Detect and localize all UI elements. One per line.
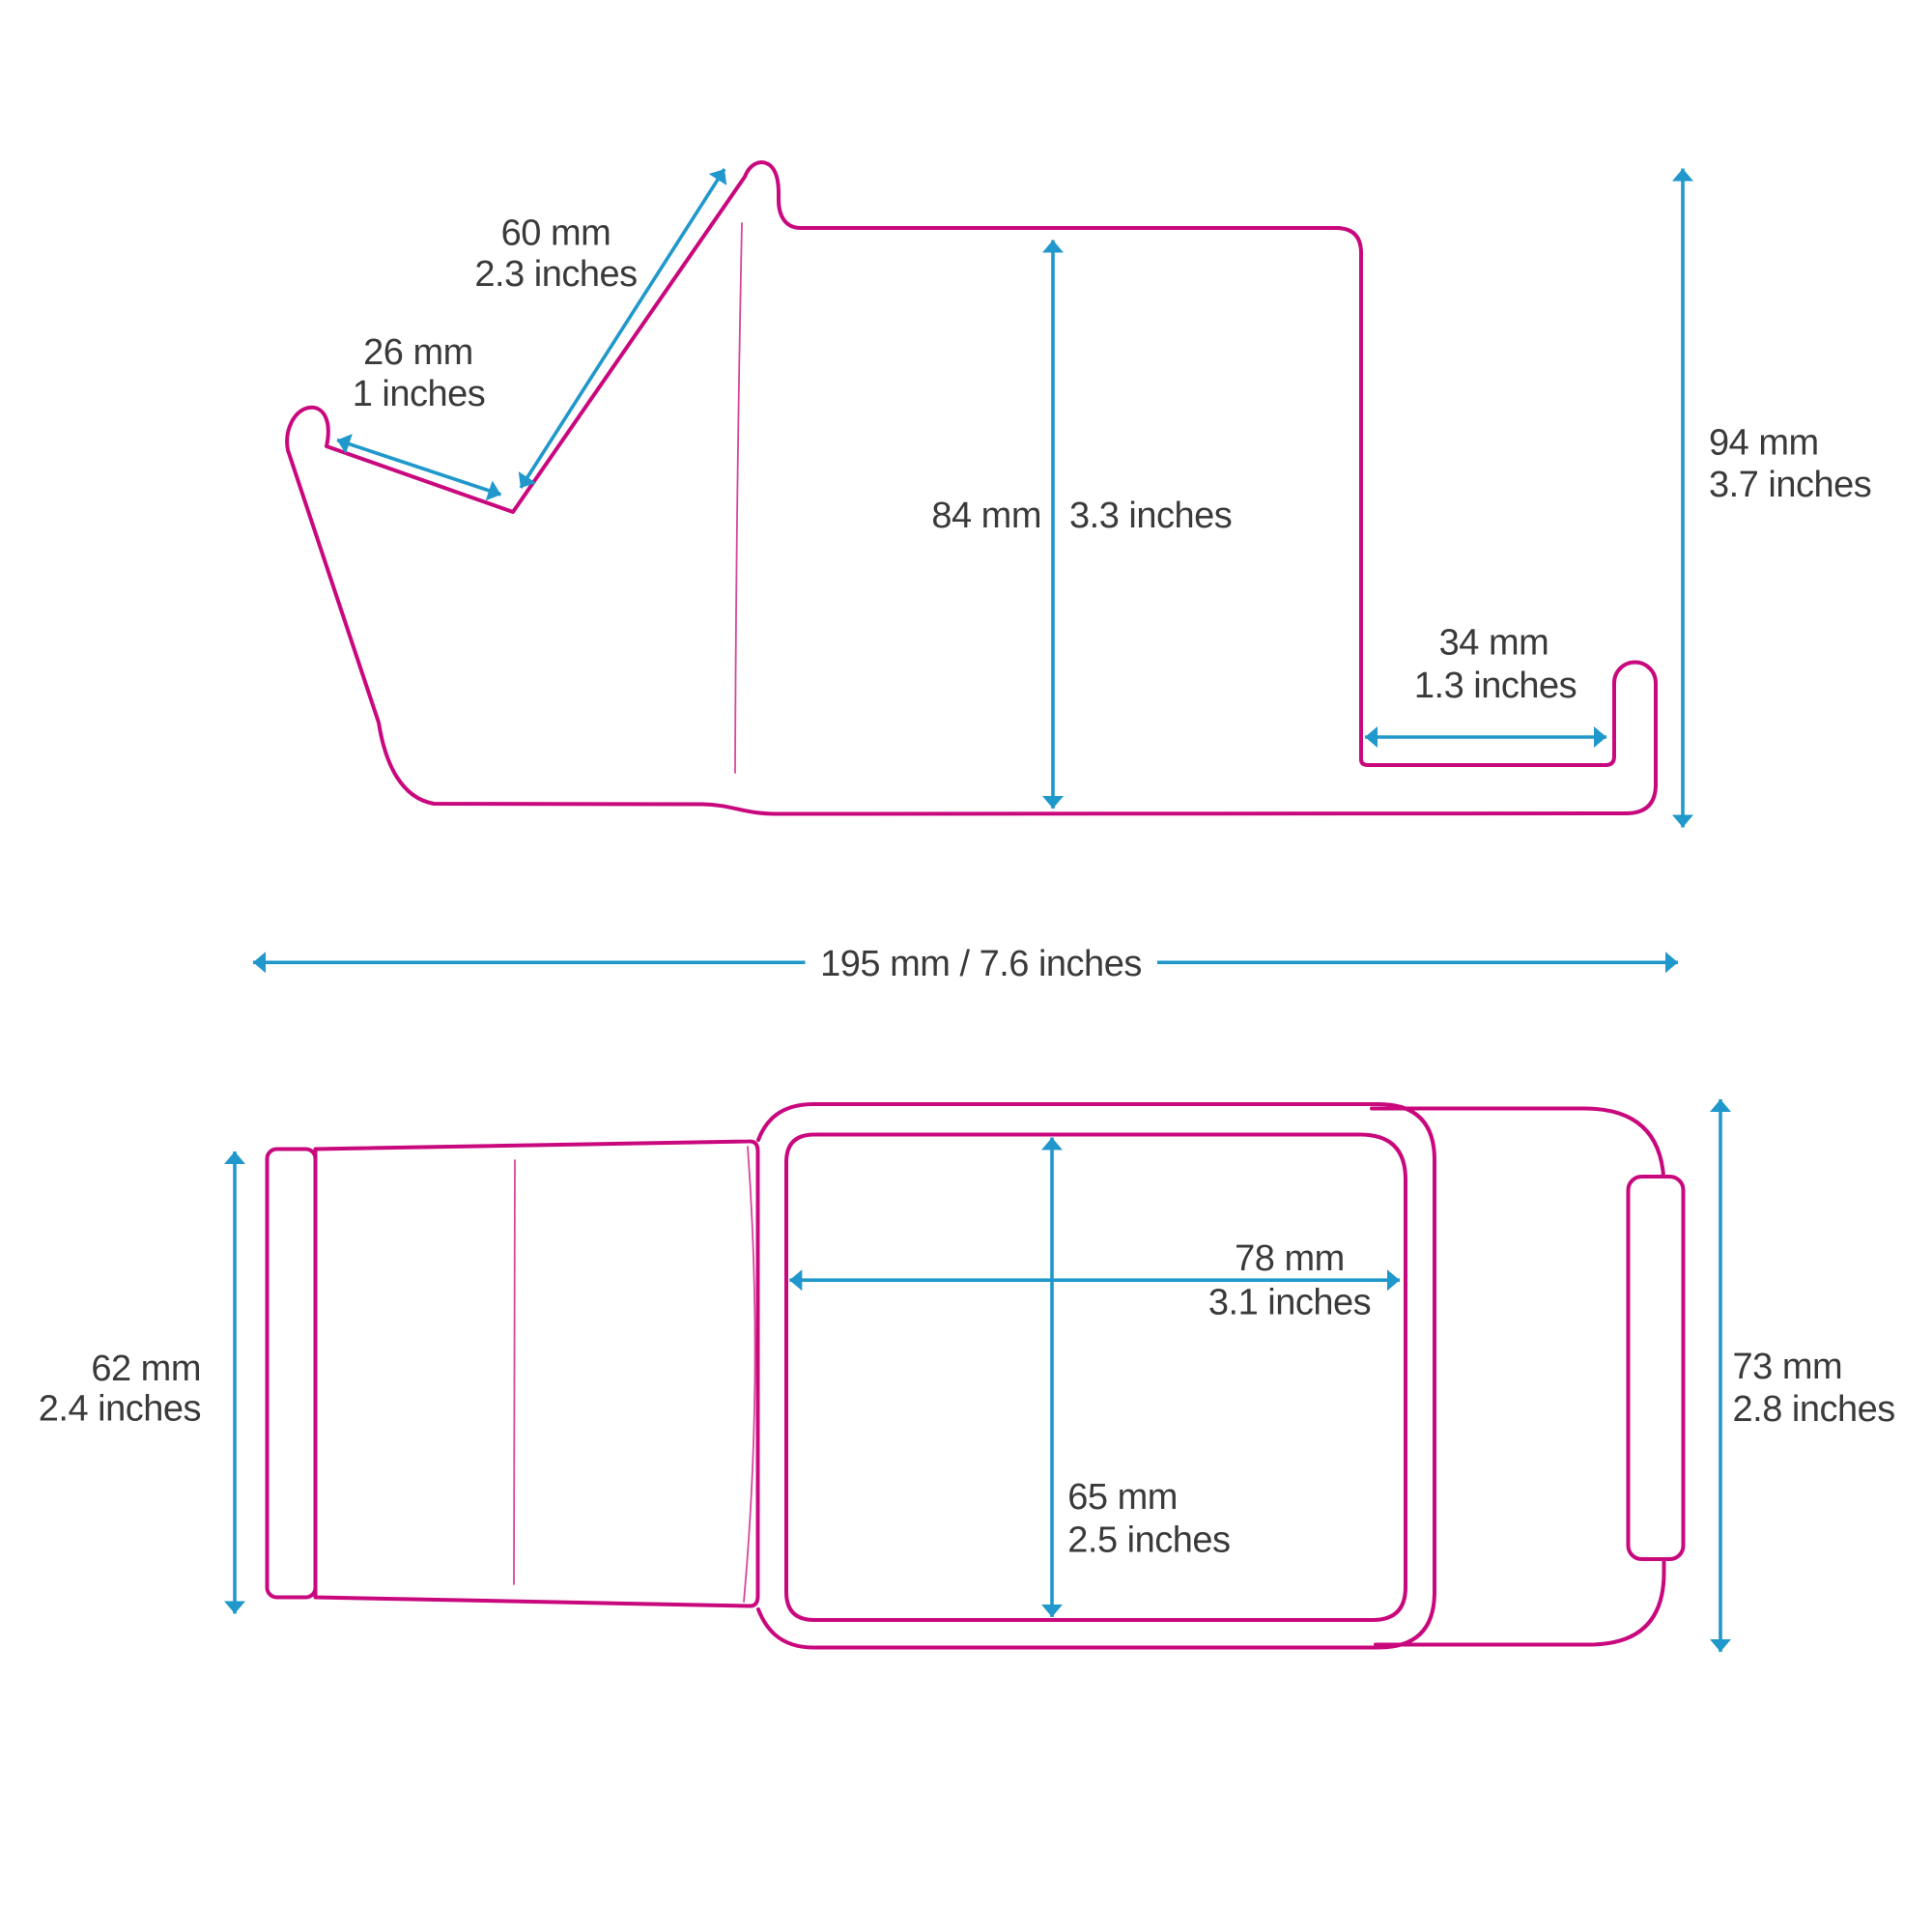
svg-text:2.3 inches: 2.3 inches — [474, 254, 637, 295]
svg-text:2.5 inches: 2.5 inches — [1067, 1520, 1230, 1561]
svg-text:73 mm: 73 mm — [1733, 1347, 1843, 1387]
svg-text:1 inches: 1 inches — [353, 374, 486, 414]
svg-text:2.4 inches: 2.4 inches — [39, 1389, 201, 1430]
svg-text:195 mm / 7.6 inches: 195 mm / 7.6 inches — [820, 944, 1142, 984]
svg-text:60 mm: 60 mm — [501, 213, 611, 254]
svg-text:3.7 inches: 3.7 inches — [1709, 465, 1871, 505]
svg-text:2.8 inches: 2.8 inches — [1733, 1389, 1895, 1430]
svg-text:34 mm: 34 mm — [1439, 623, 1549, 664]
svg-text:3.1 inches: 3.1 inches — [1208, 1283, 1371, 1323]
svg-text:26 mm: 26 mm — [363, 332, 473, 373]
svg-text:65 mm: 65 mm — [1067, 1477, 1178, 1518]
svg-text:62 mm: 62 mm — [91, 1349, 201, 1389]
svg-text:1.3 inches: 1.3 inches — [1414, 666, 1577, 706]
svg-text:94 mm: 94 mm — [1709, 423, 1819, 464]
svg-text:3.3 inches: 3.3 inches — [1069, 496, 1232, 536]
svg-text:78 mm: 78 mm — [1235, 1238, 1345, 1279]
svg-text:84 mm: 84 mm — [931, 496, 1041, 536]
